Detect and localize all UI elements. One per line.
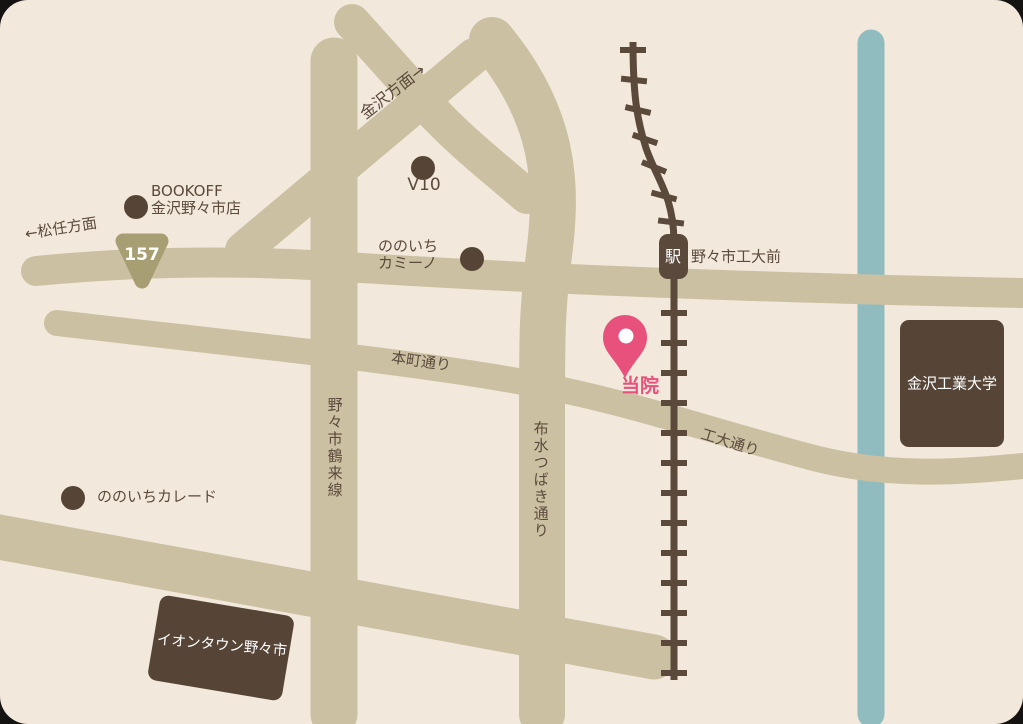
poi-label-curade: ののいちカレード: [97, 488, 217, 505]
station-symbol: 駅: [665, 248, 681, 266]
poi-label-bookoff-line2: 金沢野々市店: [151, 200, 241, 217]
poi-dot-bookoff: [124, 195, 148, 219]
map-graphics: [0, 0, 1023, 724]
poi-label-bookoff: BOOKOFF 金沢野々市店: [151, 183, 241, 218]
clinic-label: 当院: [621, 376, 659, 398]
poi-label-v10: V10: [407, 176, 440, 196]
building-label-kit: 金沢工業大学: [907, 375, 997, 392]
access-map: 金沢方面→ ←松任方面 BOOKOFF 金沢野々市店 V10 ののいち カミーノ…: [0, 0, 1023, 724]
poi-label-camino: ののいち カミーノ: [378, 238, 438, 273]
clinic-pin-hole: [619, 329, 634, 344]
road-label-tsurugi: 野々市鶴来線: [325, 397, 342, 499]
poi-dot-curade: [61, 486, 85, 510]
poi-label-camino-line2: カミーノ: [378, 255, 438, 272]
road-label-fusui-tsubaki: 布水つばき通り: [531, 421, 548, 540]
railway-tie: [621, 79, 647, 82]
station-name: 野々市工大前: [691, 248, 781, 265]
poi-label-bookoff-line1: BOOKOFF: [151, 183, 241, 200]
poi-dot-camino: [460, 247, 484, 271]
railway-tie: [658, 220, 684, 223]
poi-label-camino-line1: ののいち: [378, 238, 438, 255]
route-157-number: 157: [124, 246, 160, 266]
